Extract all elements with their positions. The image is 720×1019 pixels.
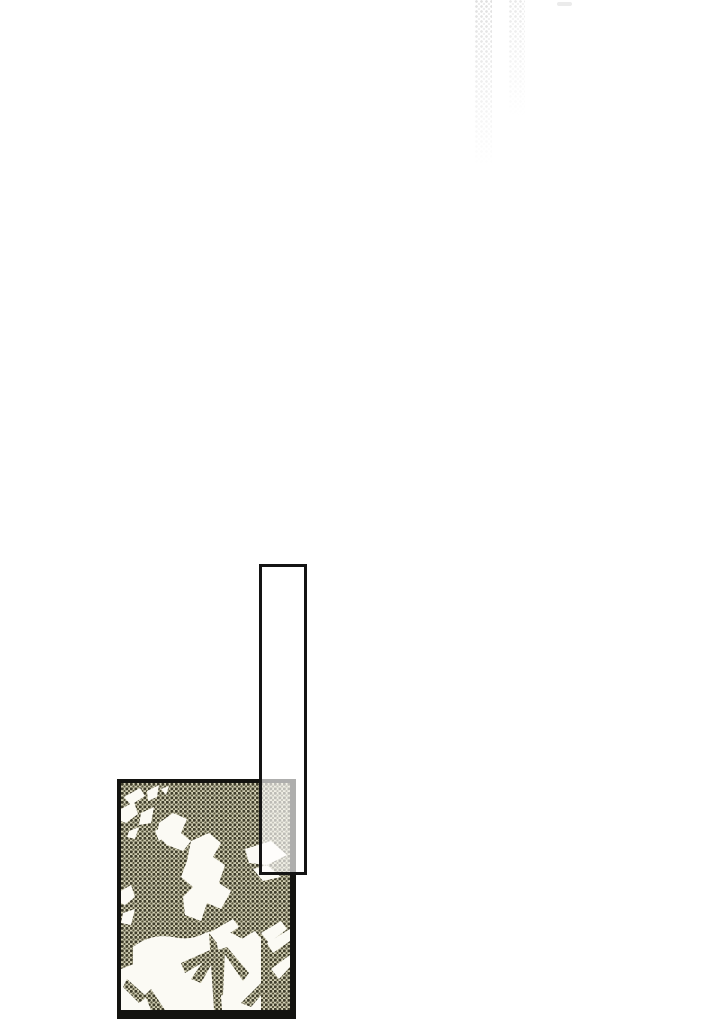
screentone-fade-strip-right — [509, 0, 525, 122]
screentone-speck — [557, 2, 572, 6]
empty-panel-frame — [259, 564, 307, 875]
comic-page — [0, 0, 720, 1019]
screentone-fade-gradient — [475, 0, 492, 172]
screentone-fade-strip-left — [475, 0, 492, 172]
screentone-fade-gradient — [509, 0, 525, 122]
